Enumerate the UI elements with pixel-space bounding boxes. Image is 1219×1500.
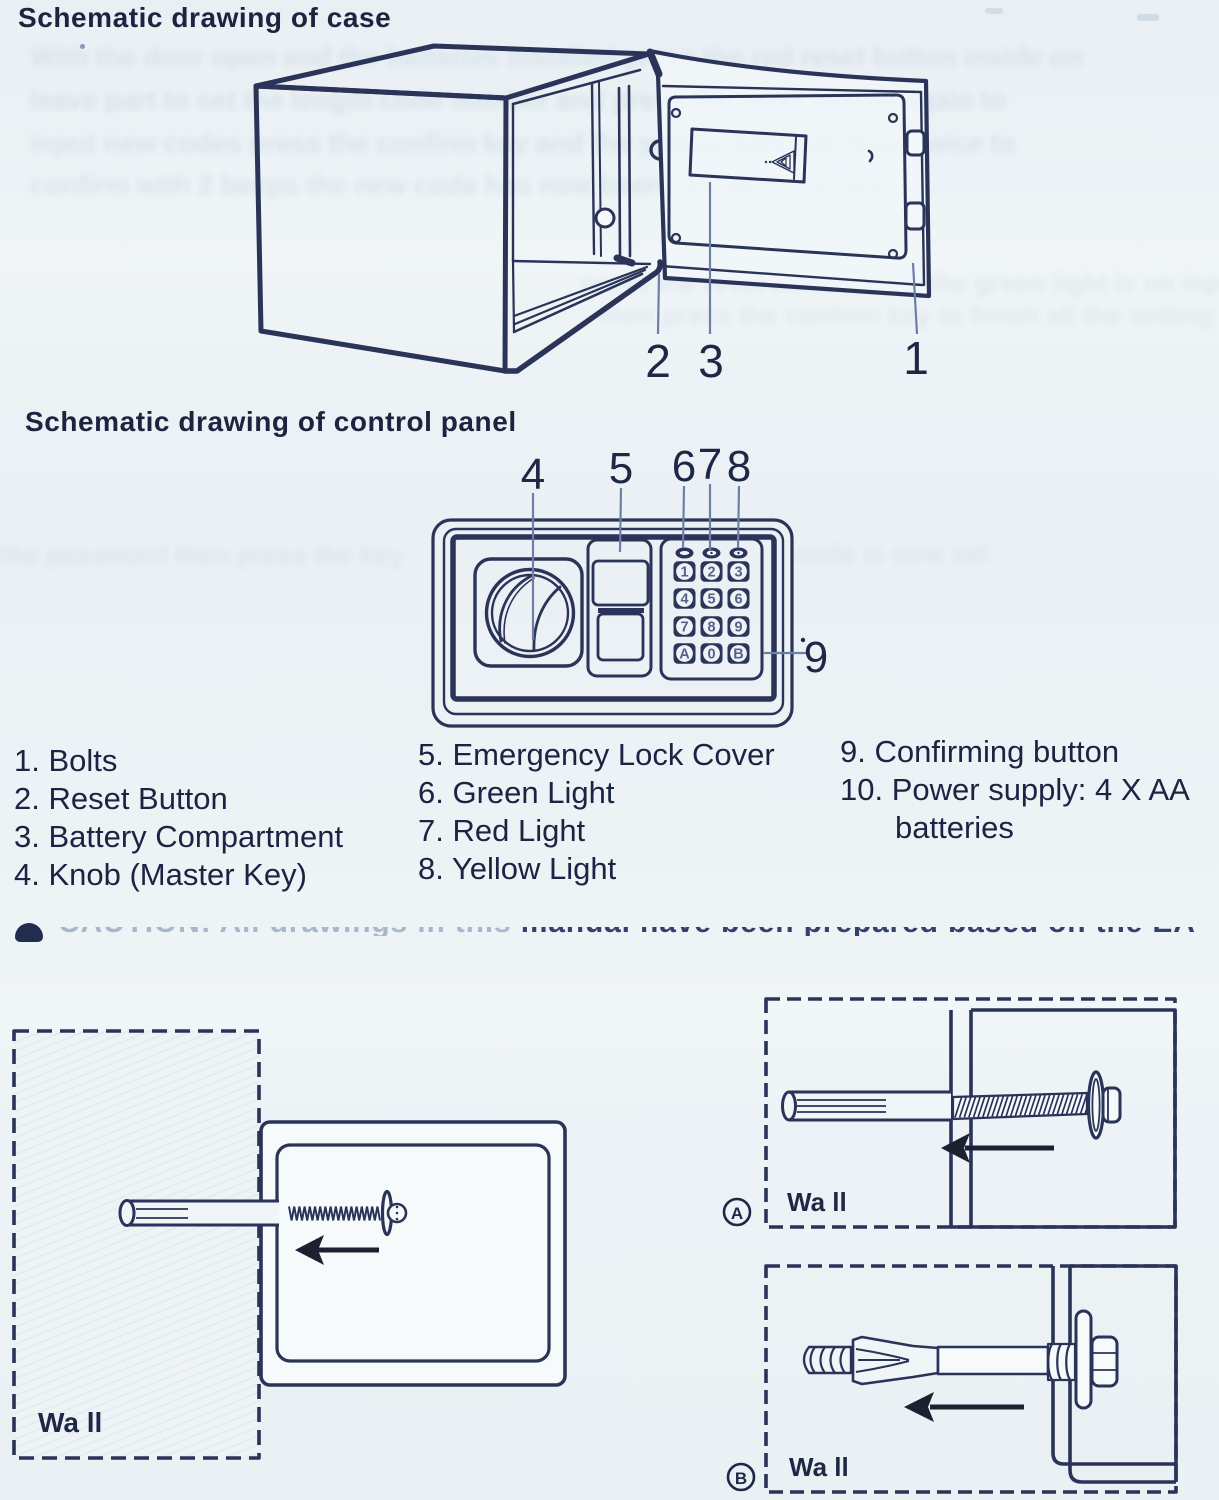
svg-text:6: 6 (672, 442, 696, 491)
svg-text:A: A (731, 1204, 743, 1223)
svg-text:4: 4 (680, 592, 688, 608)
svg-text:Wa ll: Wa ll (789, 1452, 849, 1482)
svg-text:A: A (679, 647, 690, 663)
svg-text:8: 8 (707, 620, 715, 636)
svg-text:B: B (733, 647, 743, 663)
svg-text:6: 6 (734, 592, 742, 608)
svg-text:7: 7 (680, 620, 688, 636)
svg-text:9: 9 (734, 620, 742, 636)
svg-text:7: 7 (698, 440, 722, 489)
svg-text:0: 0 (707, 647, 715, 663)
svg-text:Wa ll: Wa ll (787, 1187, 847, 1217)
svg-text:9: 9 (804, 633, 828, 682)
svg-text:5: 5 (707, 592, 715, 608)
svg-text:2: 2 (645, 335, 671, 387)
svg-text:B: B (735, 1469, 747, 1488)
svg-text:Wa ll: Wa ll (38, 1407, 102, 1438)
svg-text:5: 5 (609, 444, 633, 493)
svg-text:4: 4 (521, 450, 545, 499)
svg-text:3: 3 (698, 335, 724, 387)
svg-text:8: 8 (727, 442, 751, 491)
svg-text:3: 3 (734, 565, 742, 581)
svg-text:1: 1 (903, 332, 929, 384)
svg-text:2: 2 (707, 565, 715, 581)
svg-text:1: 1 (680, 565, 688, 581)
